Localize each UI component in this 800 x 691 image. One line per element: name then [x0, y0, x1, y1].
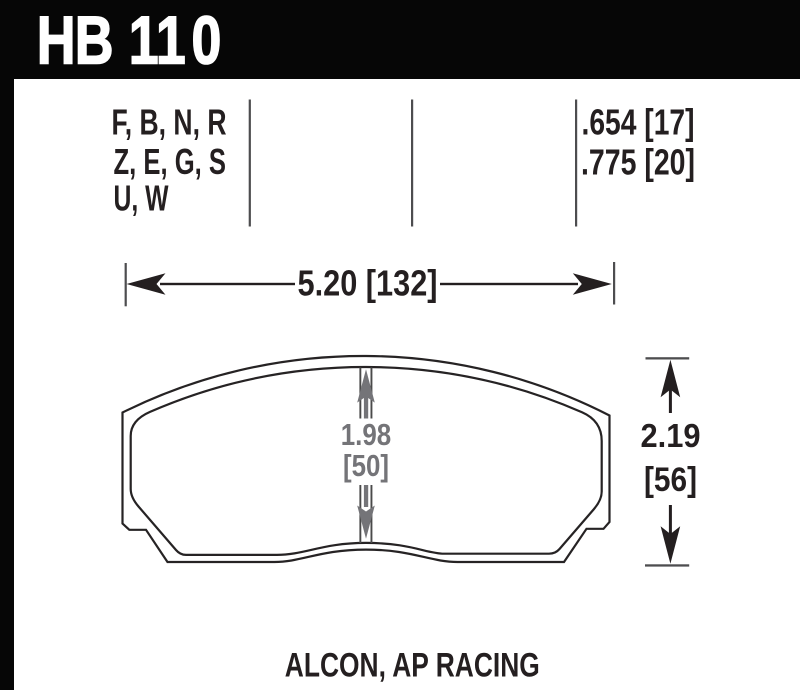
svg-text:ALCON, AP RACING: ALCON, AP RACING — [285, 646, 540, 684]
svg-text:.654 [17]: .654 [17] — [582, 102, 695, 143]
svg-text:2.19: 2.19 — [641, 418, 701, 455]
svg-text:Z, E, G, S: Z, E, G, S — [114, 141, 227, 182]
svg-text:[50]: [50] — [343, 449, 389, 483]
svg-text:HB110: HB110 — [37, 2, 226, 77]
svg-text:F, B, N, R: F, B, N, R — [112, 102, 227, 143]
svg-text:5.20 [132]: 5.20 [132] — [298, 263, 438, 304]
svg-text:1.98: 1.98 — [341, 418, 392, 452]
svg-text:[56]: [56] — [644, 461, 697, 499]
svg-text:U, W: U, W — [114, 178, 169, 219]
svg-text:.775 [20]: .775 [20] — [581, 142, 695, 183]
